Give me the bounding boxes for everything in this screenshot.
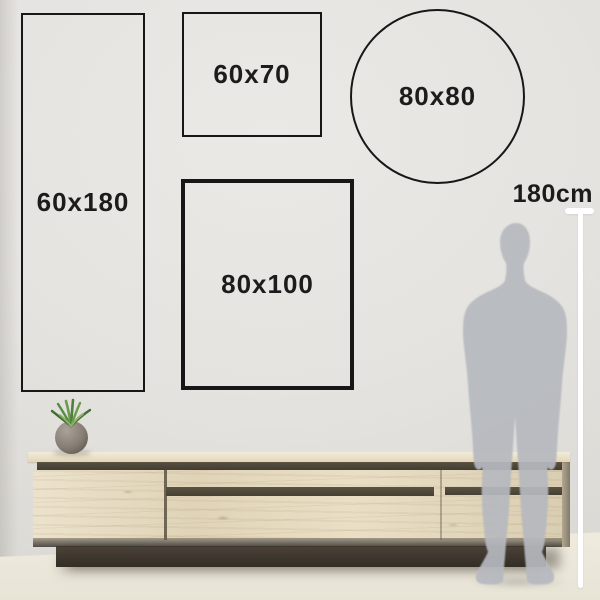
wall-shade — [0, 0, 18, 600]
size-label: 80x100 — [221, 269, 314, 300]
size-guide-scene: 60x180 60x70 80x80 80x100 180cm — [0, 0, 600, 600]
sideboard-door-seam — [164, 470, 167, 540]
plant-leaves — [48, 398, 94, 428]
sideboard-drawer-seam — [440, 470, 442, 540]
potted-plant — [48, 398, 94, 460]
size-frame-80x80: 80x80 — [350, 9, 525, 184]
sideboard-handle-groove — [166, 487, 434, 496]
size-label: 60x180 — [37, 187, 130, 218]
measure-line — [578, 210, 583, 588]
size-frame-80x100: 80x100 — [181, 179, 354, 390]
size-label: 60x70 — [213, 59, 290, 90]
height-measure-label: 180cm — [505, 180, 593, 209]
size-frame-60x180: 60x180 — [21, 13, 145, 392]
size-label: 80x80 — [399, 81, 476, 112]
person-silhouette — [462, 217, 572, 587]
size-frame-60x70: 60x70 — [182, 12, 322, 137]
